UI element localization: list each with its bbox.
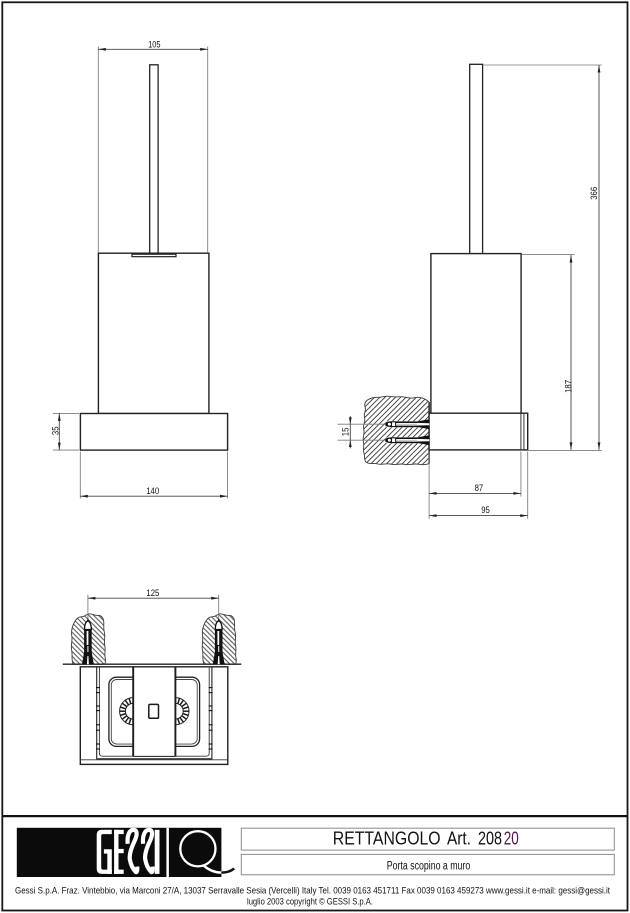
svg-text:140: 140 xyxy=(146,486,159,496)
svg-text:RETTANGOLO: RETTANGOLO xyxy=(333,829,441,849)
svg-text:125: 125 xyxy=(146,588,159,598)
svg-text:105: 105 xyxy=(148,40,160,50)
svg-text:187: 187 xyxy=(564,380,574,393)
svg-text:208: 208 xyxy=(478,829,502,849)
svg-text:Art.: Art. xyxy=(447,829,471,849)
svg-text:95: 95 xyxy=(481,505,490,515)
svg-text:15: 15 xyxy=(340,428,350,437)
svg-text:Porta scopino a muro: Porta scopino a muro xyxy=(387,860,470,872)
svg-text:Gessi S.p.A. Fraz. Vintebbio,: Gessi S.p.A. Fraz. Vintebbio, via Marcon… xyxy=(15,885,610,895)
svg-text:366: 366 xyxy=(589,187,599,200)
svg-text:20: 20 xyxy=(504,829,519,849)
svg-text:luglio 2003 copyright © GESSI: luglio 2003 copyright © GESSI S.p.A. xyxy=(247,897,373,907)
svg-text:87: 87 xyxy=(475,483,484,493)
svg-text:35: 35 xyxy=(50,427,60,436)
